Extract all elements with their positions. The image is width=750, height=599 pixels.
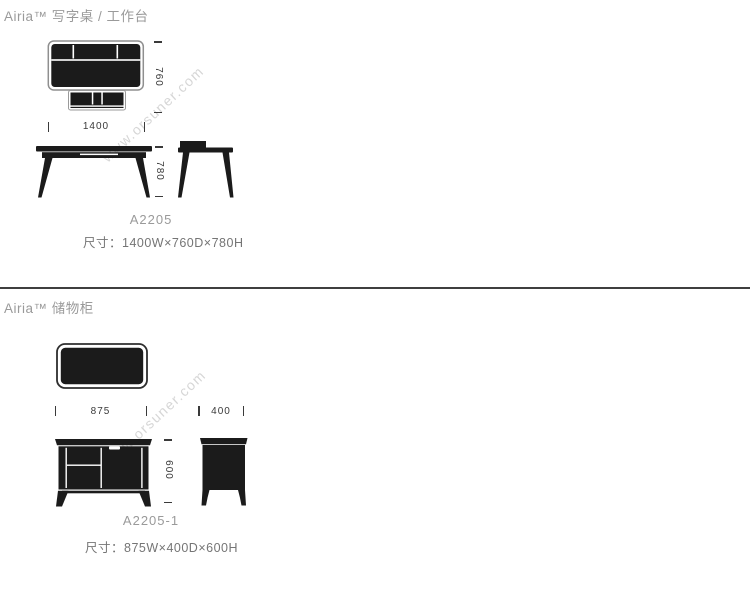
- dimension-tick: [155, 146, 163, 148]
- dimension-tick: [154, 41, 162, 43]
- dimension-label-depth: 400: [198, 406, 244, 418]
- size-specification: 尺寸：1400W×760D×780H: [83, 232, 243, 251]
- dimension-label-height: 600: [162, 455, 174, 485]
- dimension-tick: [155, 196, 163, 198]
- section-divider: [0, 287, 750, 289]
- dimension-label-width: 1400: [48, 121, 145, 133]
- cabinet-side-view-drawing: [198, 436, 250, 506]
- dimension-tick: [154, 112, 162, 114]
- size-specification: 尺寸：875W×400D×600H: [85, 537, 238, 556]
- desk-top-view-drawing: [46, 39, 146, 113]
- desk-side-view-drawing: [176, 139, 236, 200]
- dimension-label-height: 780: [153, 156, 165, 186]
- desk-front-view-drawing: [34, 144, 154, 200]
- dimension-tick: [164, 502, 172, 504]
- model-number: A2205: [90, 212, 212, 227]
- cabinet-front-view-drawing: [53, 437, 153, 507]
- dimension-label-depth: 760: [152, 62, 164, 92]
- section-title-desk: Airia™ 写字桌 / 工作台: [4, 5, 149, 25]
- spec-sheet-page: www.orsuner.com www.orsuner.com Airia™ 写…: [0, 0, 750, 599]
- dimension-label-width: 875: [55, 406, 147, 418]
- model-number: A2205-1: [90, 513, 212, 528]
- section-title-cabinet: Airia™ 储物柜: [4, 297, 94, 317]
- cabinet-top-view-drawing: [55, 342, 149, 390]
- dimension-tick: [164, 439, 172, 441]
